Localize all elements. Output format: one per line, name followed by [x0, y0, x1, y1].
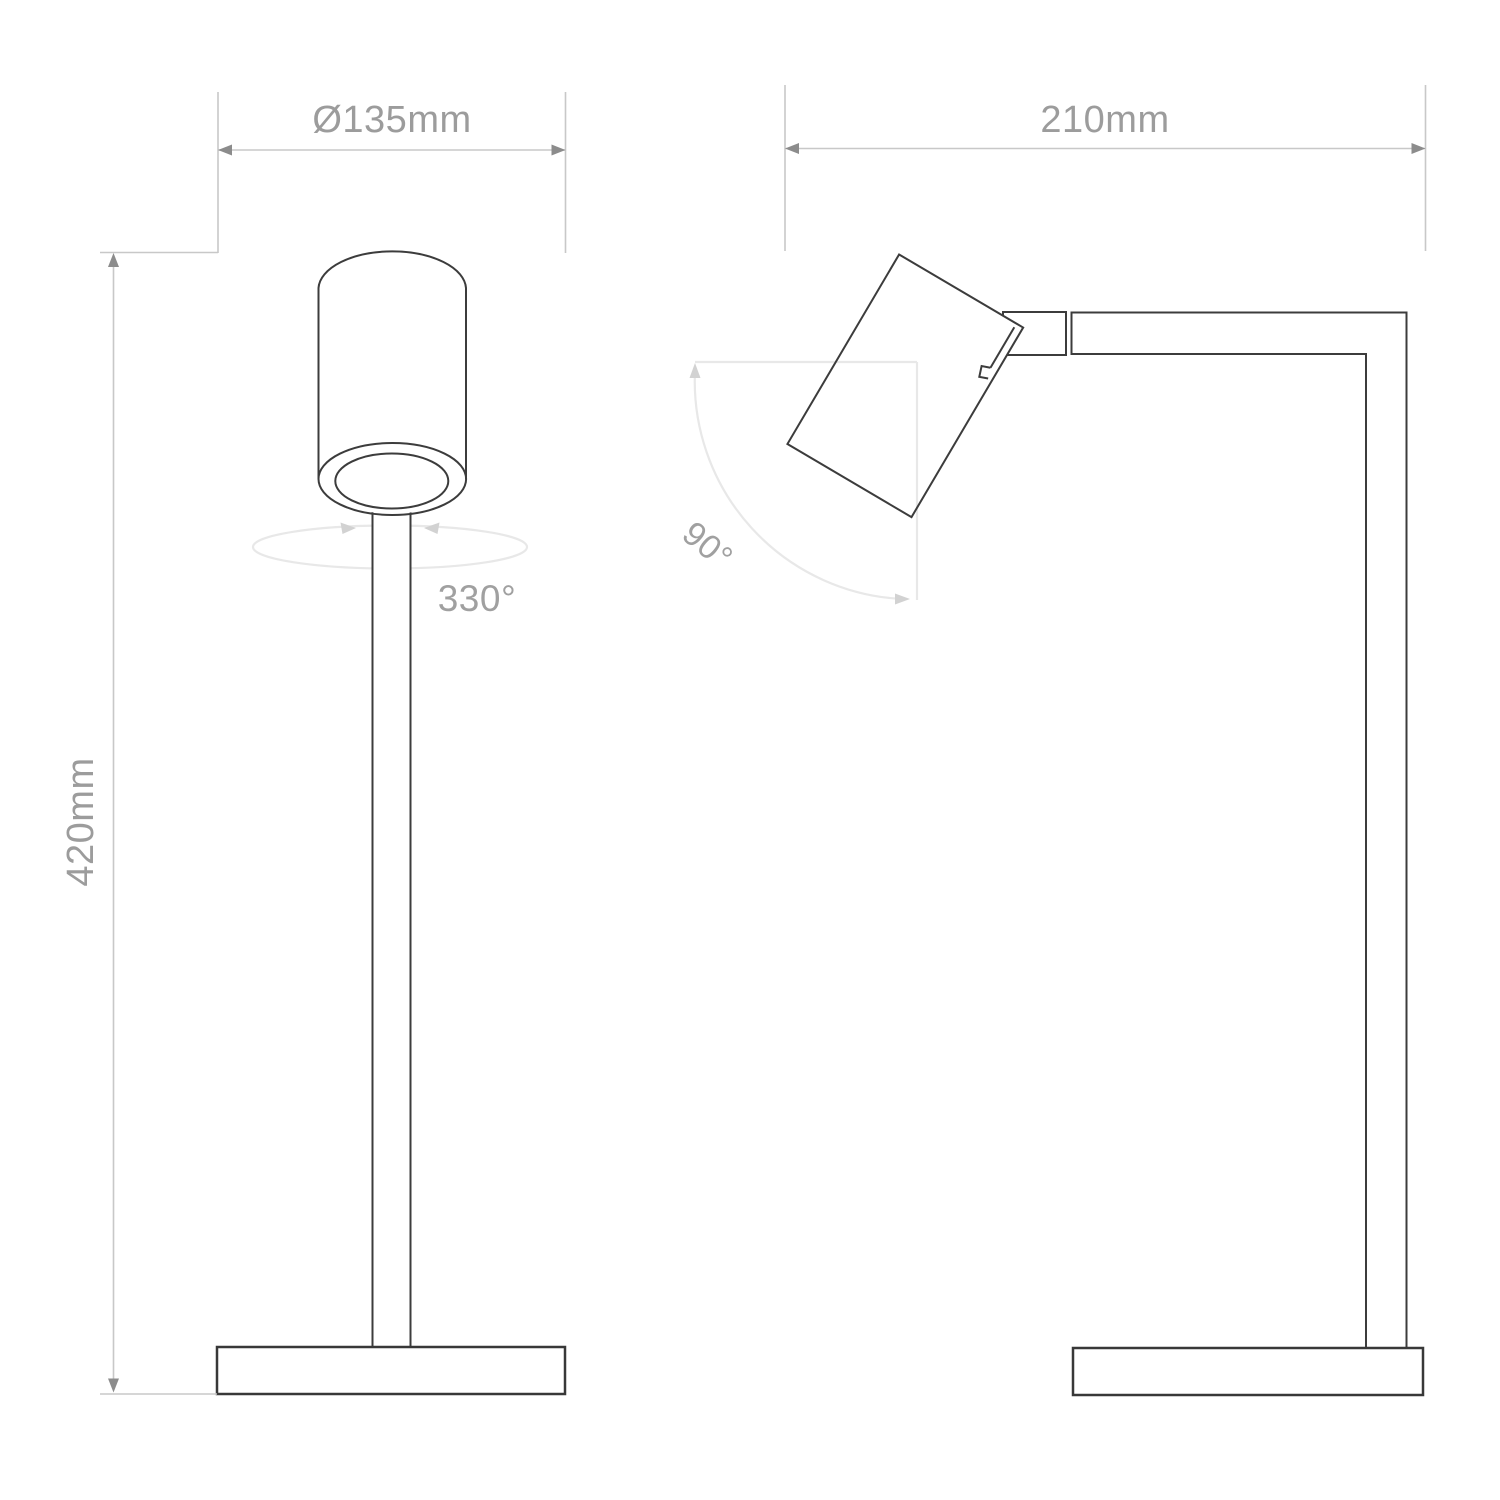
front-height-dimension: 420mm: [60, 253, 218, 1395]
front-stem: [373, 485, 411, 1347]
tilt-angle-label: 90°: [675, 514, 740, 577]
dimension-arrow-left-icon: [785, 143, 799, 154]
swivel-arrow-left-icon: [424, 523, 440, 535]
dimension-arrow-left-icon: [218, 145, 232, 156]
tilt-label-group: 90°: [675, 514, 740, 577]
dimension-arrow-down-icon: [108, 1379, 119, 1393]
front-view: 330° Ø135mm 420mm: [60, 92, 566, 1394]
side-arm: [1072, 313, 1407, 1349]
dimension-arrow-up-icon: [108, 253, 119, 267]
front-stem-fill: [373, 485, 411, 1347]
side-view: 90° 210mm: [675, 85, 1426, 1395]
tilt-arrow-up-icon: [690, 363, 701, 378]
front-diameter-label: Ø135mm: [312, 99, 471, 141]
side-depth-label: 210mm: [1040, 99, 1169, 141]
front-height-label: 420mm: [60, 757, 102, 886]
front-base: [217, 1347, 565, 1394]
front-head: [319, 251, 467, 515]
dimension-arrow-right-icon: [552, 145, 566, 156]
front-head-fill: [319, 251, 467, 513]
lamp-dimension-drawing: 330° Ø135mm 420mm: [0, 0, 1500, 1500]
drawing-canvas: 330° Ø135mm 420mm: [0, 0, 1500, 1500]
dimension-arrow-right-icon: [1412, 143, 1426, 154]
swivel-arrow-right-icon: [341, 523, 357, 535]
front-diameter-dimension: Ø135mm: [218, 92, 566, 253]
side-depth-dimension: 210mm: [785, 85, 1426, 251]
side-base: [1073, 1348, 1423, 1395]
swivel-angle-label: 330°: [438, 578, 517, 619]
tilt-arrow-right-icon: [895, 594, 910, 605]
